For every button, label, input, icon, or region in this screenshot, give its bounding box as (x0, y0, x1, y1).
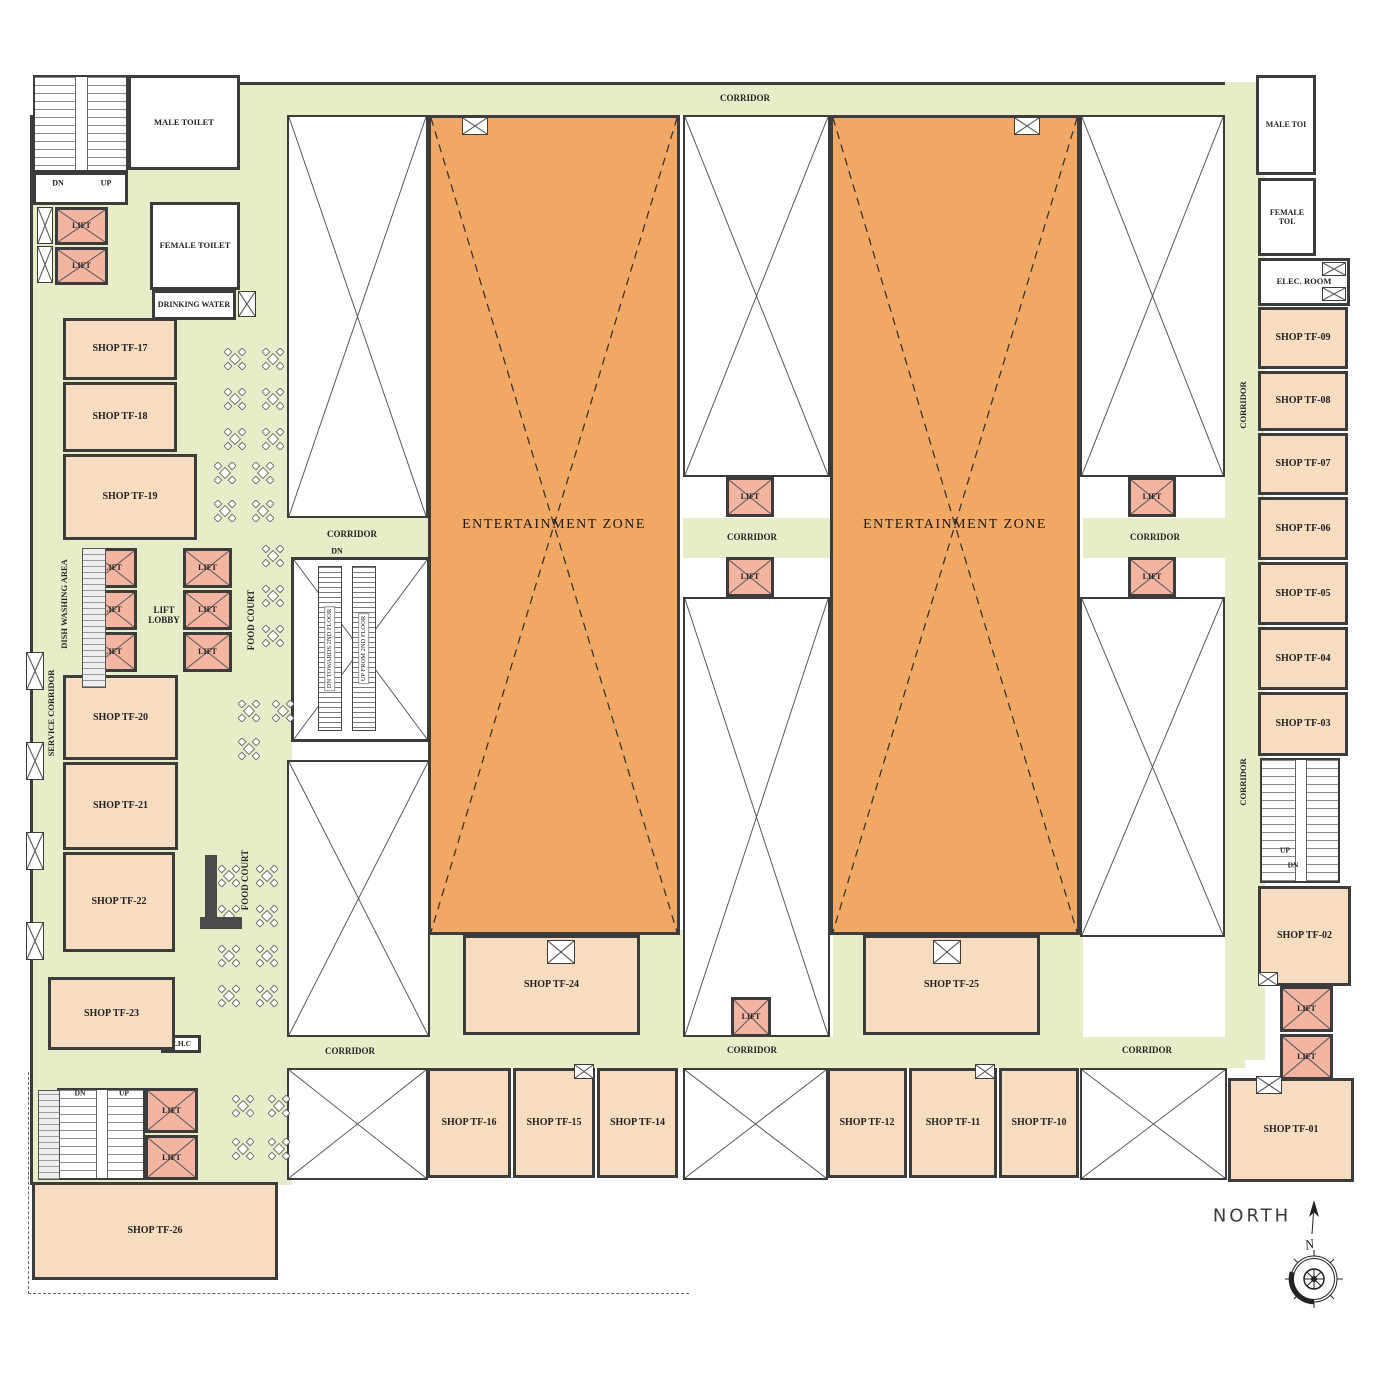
service-corridor-label: SERVICE CORRIDOR (46, 670, 56, 757)
stairs-east-up: UP (1280, 846, 1290, 855)
lift-east-south-label: LIFT (1141, 572, 1164, 581)
shop-tf-14-label: SHOP TF-14 (608, 1117, 667, 1129)
stairs-sw-dn: DN (75, 1089, 86, 1098)
lift-center-south: LIFT (726, 557, 774, 597)
shop-tf-26-label: SHOP TF-26 (125, 1225, 184, 1237)
food-court-table-1 (224, 348, 246, 370)
food-court-table-13 (262, 625, 284, 647)
kitchen-strip-sw (38, 1090, 60, 1180)
staircase-northwest (33, 75, 128, 172)
food-court-table-17 (218, 865, 240, 887)
lift-east-north-label: LIFT (1141, 492, 1164, 501)
void-center-lower (683, 597, 830, 1037)
food-court-table-21 (218, 945, 240, 967)
corridor-label-east-vert-2: CORRIDOR (1238, 758, 1248, 805)
corridor-label-center: CORRIDOR (727, 532, 777, 542)
shop-tf-24-label: SHOP TF-24 (522, 979, 581, 991)
escalator-down: DN TOWARDS 2ND FLOOR (318, 566, 342, 731)
shop-tf-23-label: SHOP TF-23 (82, 1008, 141, 1020)
food-court-table-23 (218, 985, 240, 1007)
food-court-table-11 (262, 545, 284, 567)
duct-tf01 (1256, 1076, 1282, 1094)
void-left-upper (287, 115, 428, 518)
void-left-lower (287, 760, 430, 1037)
shop-tf-23: SHOP TF-23 (48, 977, 175, 1050)
food-court-table-14 (238, 700, 260, 722)
shop-tf-16-label: SHOP TF-16 (439, 1117, 498, 1129)
lift-se-2-label: LIFT (1295, 1052, 1318, 1061)
stairs-east-dn: DN (1288, 861, 1299, 870)
food-court-table-28 (268, 1138, 290, 1160)
entertainment-zone-west-label: ENTERTAINMENT ZONE (460, 517, 648, 533)
shop-tf-15: SHOP TF-15 (513, 1068, 595, 1178)
void-center-upper (683, 115, 830, 477)
lift-se-2: LIFT (1280, 1034, 1333, 1080)
corridor-label-bottom-east: CORRIDOR (1122, 1045, 1172, 1055)
lift-sw-1-label: LIFT (160, 1106, 183, 1115)
food-court-table-9 (214, 500, 236, 522)
shop-tf-03-label: SHOP TF-03 (1273, 718, 1332, 730)
entertainment-zone-east: ENTERTAINMENT ZONE (830, 115, 1080, 935)
food-court-label-2: FOOD COURT (240, 850, 250, 910)
shop-tf-20: SHOP TF-20 (63, 675, 178, 760)
food-court-table-8 (252, 462, 274, 484)
compass-north-arrow-icon (1309, 1200, 1319, 1217)
shop-tf-01: SHOP TF-01 (1228, 1078, 1354, 1182)
duct-tf25 (933, 940, 961, 964)
void-right-lower (1080, 597, 1225, 937)
food-court-table-26 (268, 1095, 290, 1117)
food-court-table-7 (214, 462, 236, 484)
lift-lobby-4-label: LIFT (196, 563, 219, 572)
lift-lobby-5-label: LIFT (196, 605, 219, 614)
drinking-water: DRINKING WATER (152, 290, 236, 320)
floor-plan-canvas: NORTH N ENTERTAINMENT ZONEENTERTAINMENT … (0, 0, 1400, 1400)
shop-tf-19-label: SHOP TF-19 (100, 491, 159, 503)
lift-east-north: LIFT (1128, 477, 1176, 517)
food-court-table-25 (232, 1095, 254, 1117)
entertainment-zone-east-label: ENTERTAINMENT ZONE (861, 517, 1049, 533)
shop-tf-02: SHOP TF-02 (1258, 886, 1351, 986)
food-court-table-2 (262, 348, 284, 370)
male-toilet-east-label: MALE TOI (1264, 120, 1308, 129)
lift-se-1: LIFT (1280, 986, 1333, 1032)
dish-washing-area-label: DISH WASHING AREA (59, 559, 69, 649)
food-court-table-22 (256, 945, 278, 967)
duct-ez-east (1014, 117, 1040, 135)
food-court-label-1: FOOD COURT (246, 590, 256, 650)
food-court-table-10 (252, 500, 274, 522)
food-court-table-15 (272, 700, 294, 722)
shop-tf-14: SHOP TF-14 (597, 1068, 678, 1178)
stairs-sw-up: UP (119, 1089, 129, 1098)
food-court-table-16 (238, 738, 260, 760)
food-court-table-6 (262, 428, 284, 450)
duct-drinking-water (238, 291, 256, 317)
duct-elec-2 (1322, 287, 1346, 301)
lift-south-center: LIFT (731, 997, 771, 1037)
void-bottom-right (1080, 1068, 1227, 1180)
lift-se-1-label: LIFT (1295, 1004, 1318, 1013)
male-toilet-east: MALE TOI (1256, 75, 1316, 175)
shop-tf-17-label: SHOP TF-17 (90, 343, 149, 355)
shop-tf-05-label: SHOP TF-05 (1273, 588, 1332, 600)
electrical-room-label: ELEC. ROOM (1275, 277, 1334, 287)
shop-tf-10: SHOP TF-10 (999, 1068, 1079, 1178)
shop-tf-07-label: SHOP TF-07 (1273, 458, 1332, 470)
duct-service-1 (26, 652, 44, 690)
lift-south-center-label: LIFT (740, 1012, 763, 1021)
lift-center-north-label: LIFT (739, 492, 762, 501)
lift-sw-1: LIFT (145, 1088, 198, 1133)
corridor-label-east-vert-1: CORRIDOR (1238, 381, 1248, 428)
shop-tf-21-label: SHOP TF-21 (91, 800, 150, 812)
shop-tf-25-label: SHOP TF-25 (922, 979, 981, 991)
lift-lobby-6: LIFT (183, 632, 232, 672)
corridor-label-top: CORRIDOR (720, 93, 770, 103)
shop-tf-12-label: SHOP TF-12 (837, 1117, 896, 1129)
food-court-table-20 (256, 905, 278, 927)
shop-tf-15-label: SHOP TF-15 (524, 1117, 583, 1129)
escalator-dn-label: DN (331, 547, 343, 556)
shop-tf-01-label: SHOP TF-01 (1261, 1124, 1320, 1136)
lift-center-north: LIFT (726, 477, 774, 517)
shop-tf-10-label: SHOP TF-10 (1009, 1117, 1068, 1129)
dish-washing-counter (82, 548, 106, 688)
escalator-down-label: DN TOWARDS 2ND FLOOR (326, 607, 335, 690)
shop-tf-08: SHOP TF-08 (1258, 371, 1348, 431)
female-toilet: FEMALE TOILET (150, 202, 240, 290)
shop-tf-22: SHOP TF-22 (63, 852, 175, 952)
duct-nw-2 (37, 246, 53, 283)
lift-nw-1: LIFT (55, 207, 108, 245)
shop-tf-22-label: SHOP TF-22 (89, 896, 148, 908)
shop-tf-06-label: SHOP TF-06 (1273, 523, 1332, 535)
stairs-nw-dn: DN (52, 179, 64, 188)
duct-elec-1 (1322, 262, 1346, 276)
shop-tf-05: SHOP TF-05 (1258, 562, 1348, 625)
lift-nw-2-label: LIFT (70, 261, 93, 270)
shop-tf-08-label: SHOP TF-08 (1273, 395, 1332, 407)
lift-sw-2: LIFT (145, 1135, 198, 1180)
shop-tf-18-label: SHOP TF-18 (90, 411, 149, 423)
void-bottom-center (683, 1068, 828, 1180)
shop-tf-26: SHOP TF-26 (32, 1182, 278, 1280)
shop-tf-04-label: SHOP TF-04 (1273, 653, 1332, 665)
corridor-label-east-mid: CORRIDOR (1130, 532, 1180, 542)
duct-tf11 (975, 1064, 995, 1079)
shop-tf-21: SHOP TF-21 (63, 762, 178, 850)
shop-tf-02-label: SHOP TF-02 (1275, 930, 1334, 942)
lift-lobby-label: LIFT LOBBY (141, 606, 187, 626)
lift-nw-1-label: LIFT (70, 221, 93, 230)
serving-counter-1 (205, 855, 217, 917)
north-label: NORTH (1213, 1206, 1291, 1227)
lift-sw-2-label: LIFT (160, 1153, 183, 1162)
duct-service-3 (26, 832, 44, 870)
corridor-label-bottom-west: CORRIDOR (325, 1046, 375, 1056)
shop-tf-12: SHOP TF-12 (827, 1068, 907, 1178)
shop-tf-04: SHOP TF-04 (1258, 627, 1348, 690)
duct-ez-west (462, 117, 488, 135)
duct-tf15 (574, 1064, 594, 1079)
stairs-nw-up: UP (101, 179, 112, 188)
void-bottom-left (287, 1068, 428, 1180)
compass-n: N (1302, 1237, 1316, 1254)
food-court-table-27 (232, 1138, 254, 1160)
food-court-table-4 (262, 388, 284, 410)
shop-tf-17: SHOP TF-17 (63, 318, 177, 380)
food-court-table-18 (256, 865, 278, 887)
female-toilet-east: FEMALE TOI. (1258, 178, 1316, 256)
duct-service-4 (26, 922, 44, 960)
shop-tf-11: SHOP TF-11 (909, 1068, 997, 1178)
lift-lobby-5: LIFT (183, 590, 232, 630)
duct-service-2 (26, 742, 44, 780)
shop-tf-20-label: SHOP TF-20 (91, 712, 150, 724)
drinking-water-label: DRINKING WATER (156, 300, 232, 309)
female-toilet-label: FEMALE TOILET (158, 241, 233, 251)
staircase-southwest (57, 1088, 145, 1180)
entertainment-zone-west: ENTERTAINMENT ZONE (428, 115, 680, 935)
void-right-upper (1080, 115, 1225, 477)
corridor-label-escalator: CORRIDOR (327, 529, 377, 539)
lift-lobby-6-label: LIFT (196, 647, 219, 656)
food-court-table-12 (262, 585, 284, 607)
compass-rose-icon: N (1283, 1196, 1345, 1308)
shop-tf-16: SHOP TF-16 (427, 1068, 511, 1178)
shop-tf-09: SHOP TF-09 (1258, 307, 1348, 369)
escalator-up-label: UP FROM 2ND FLOOR (360, 614, 369, 683)
escalator-up: UP FROM 2ND FLOOR (352, 566, 376, 731)
staircase-east (1260, 758, 1340, 883)
food-court-table-3 (224, 388, 246, 410)
male-toilet-label: MALE TOILET (152, 118, 216, 128)
corridor-label-bottom-center: CORRIDOR (727, 1045, 777, 1055)
stairs-nw-vestibule (33, 172, 128, 205)
food-court-table-5 (224, 428, 246, 450)
shop-tf-19: SHOP TF-19 (63, 454, 197, 540)
female-toilet-east-label: FEMALE TOI. (1261, 208, 1313, 226)
lift-lobby-4: LIFT (183, 548, 232, 588)
male-toilet: MALE TOILET (128, 75, 240, 170)
shop-tf-07: SHOP TF-07 (1258, 433, 1348, 495)
food-court-table-24 (256, 985, 278, 1007)
shop-tf-11-label: SHOP TF-11 (924, 1117, 983, 1129)
duct-nw-1 (37, 207, 53, 244)
lift-center-south-label: LIFT (739, 572, 762, 581)
lift-nw-2: LIFT (55, 247, 108, 285)
serving-counter-2 (200, 917, 242, 929)
shop-tf-06: SHOP TF-06 (1258, 497, 1348, 560)
shop-tf-03: SHOP TF-03 (1258, 692, 1348, 756)
lift-east-south: LIFT (1128, 557, 1176, 597)
duct-tf24 (547, 940, 575, 964)
shop-tf-09-label: SHOP TF-09 (1273, 332, 1332, 344)
shop-tf-18: SHOP TF-18 (63, 382, 177, 452)
escalator-block: DN TOWARDS 2ND FLOORUP FROM 2ND FLOOR (291, 557, 430, 742)
duct-tf02 (1258, 972, 1278, 986)
